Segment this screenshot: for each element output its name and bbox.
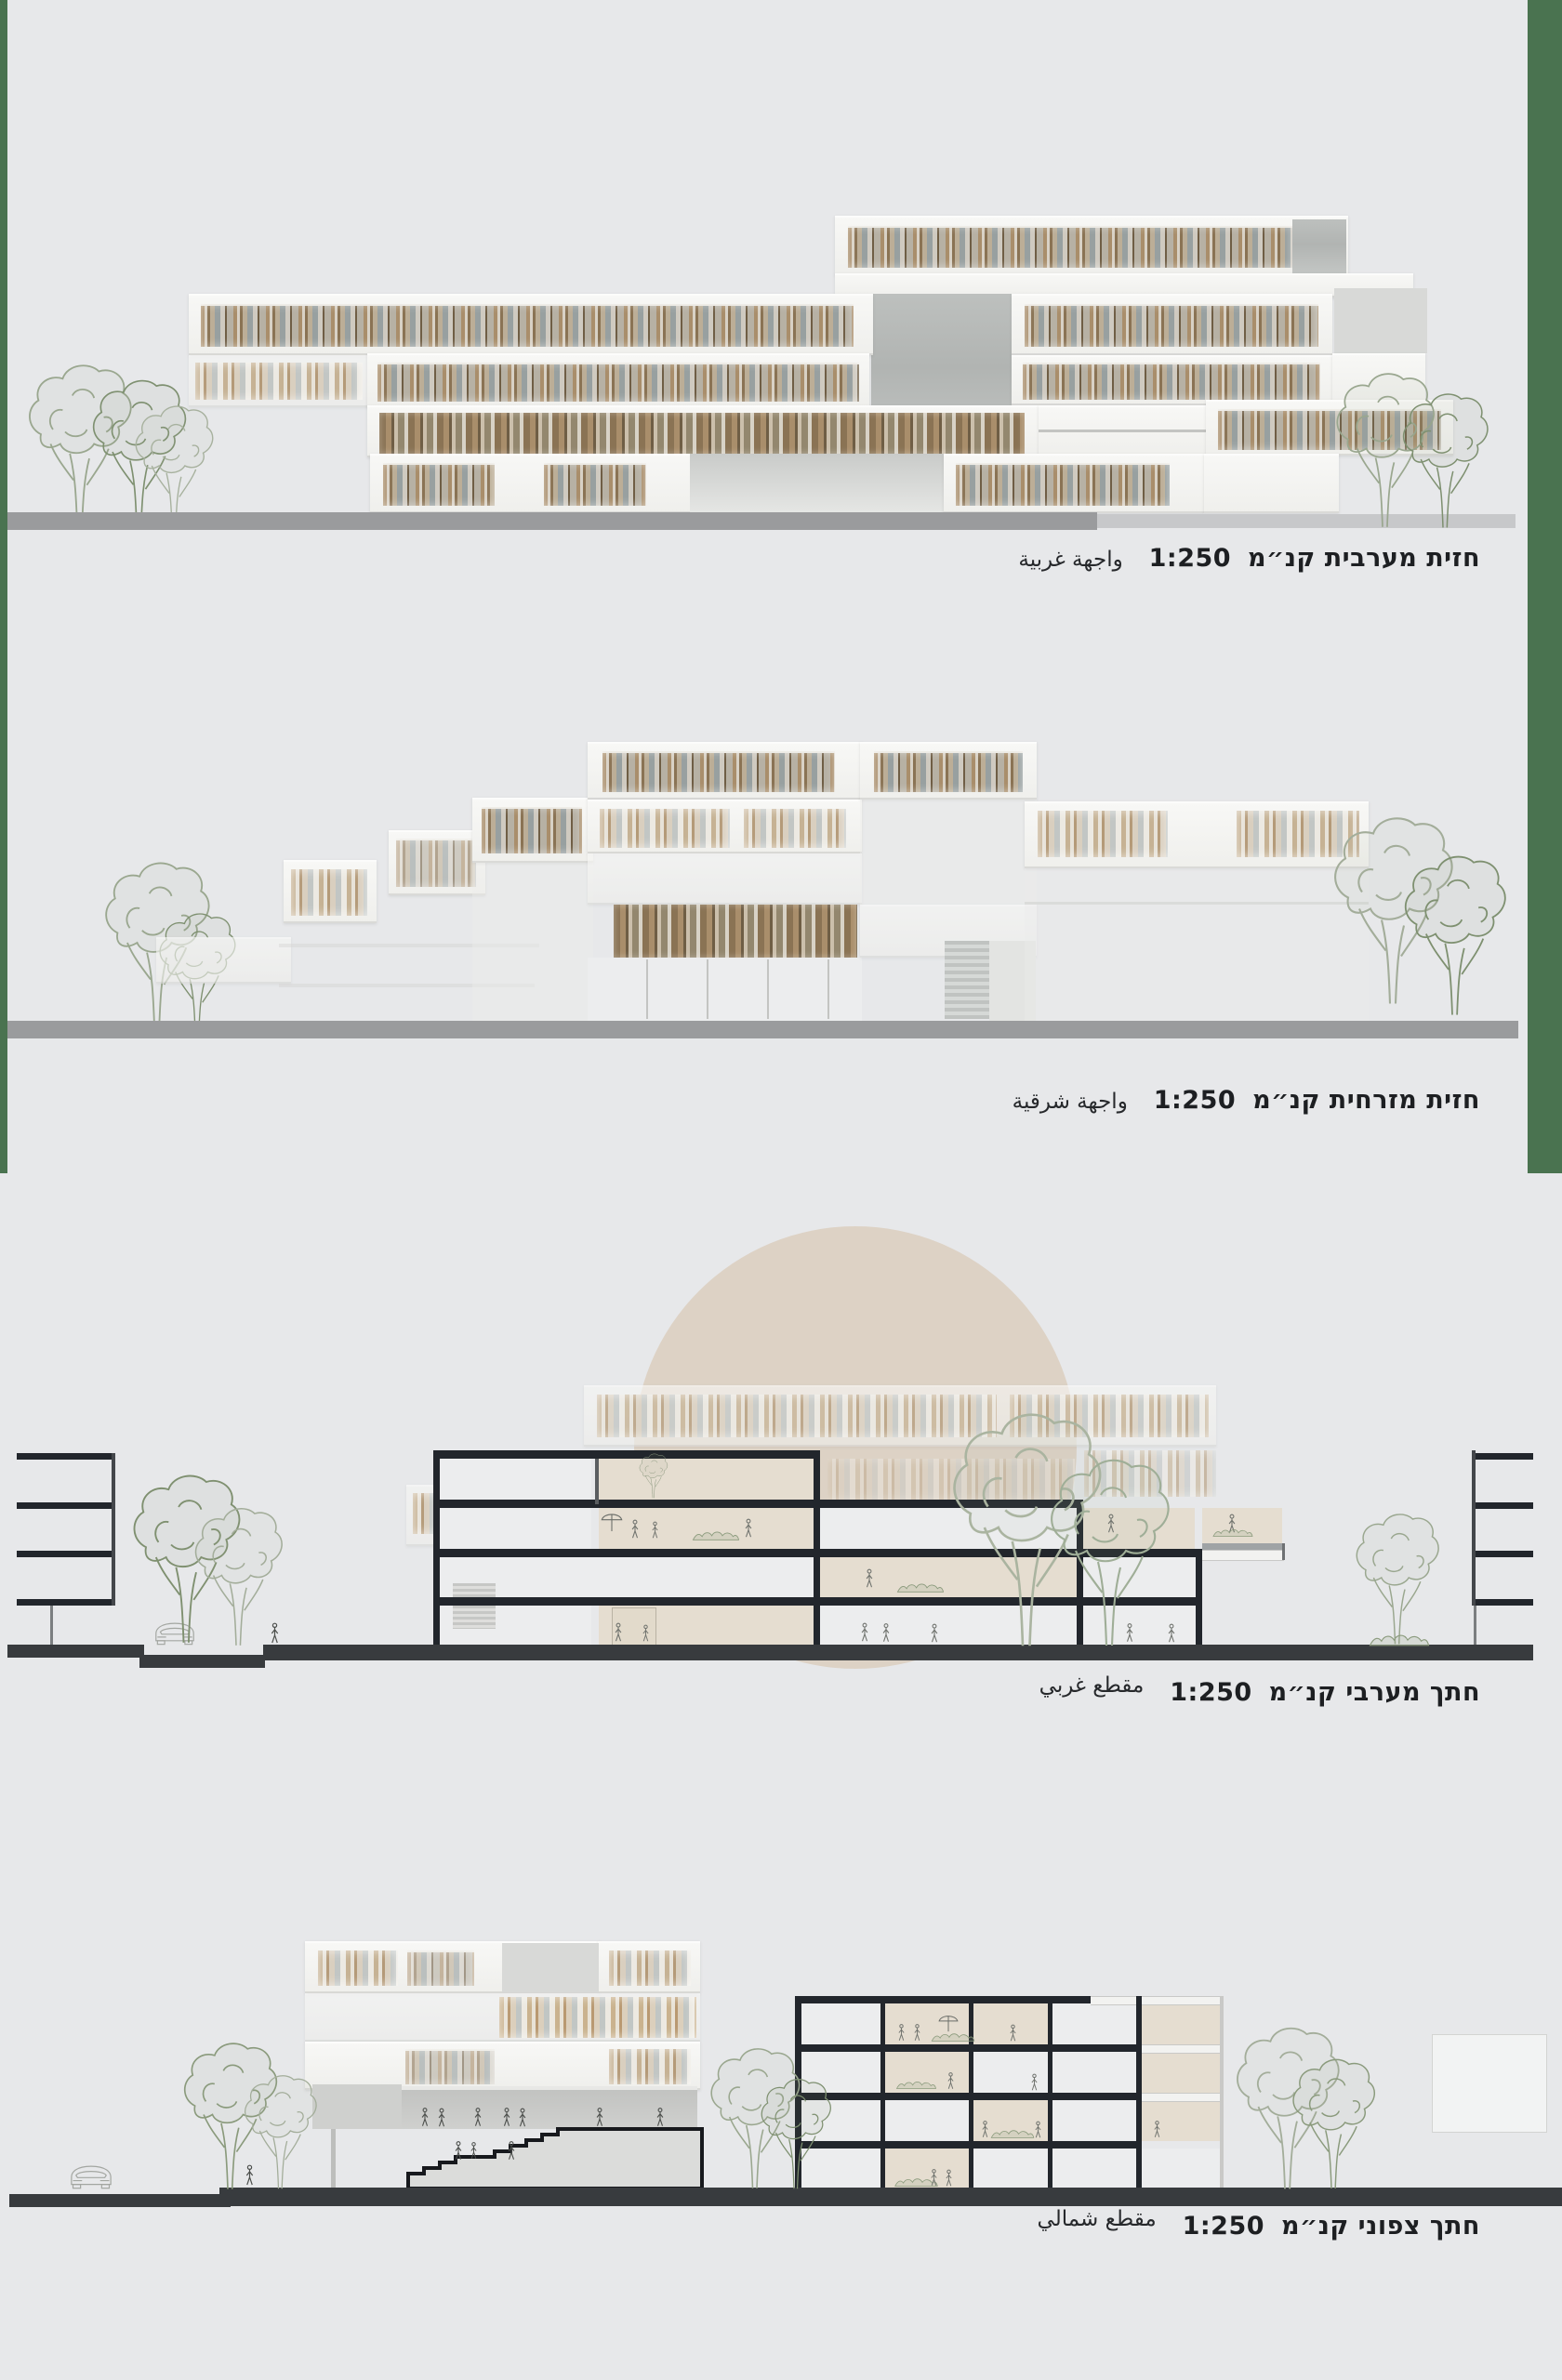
washed-wall <box>472 863 593 1021</box>
window-strip <box>383 463 495 506</box>
window-strip-long <box>499 1997 696 2038</box>
panel-north-section <box>0 1934 1562 2380</box>
column <box>433 1450 440 1647</box>
section-bay <box>973 2052 1136 2093</box>
person-figure <box>1034 2121 1042 2139</box>
concrete-panel <box>1334 288 1427 353</box>
person-figure <box>655 2107 665 2128</box>
tree-icon <box>184 1503 288 1647</box>
window-strip <box>744 809 846 848</box>
window-strip <box>195 363 363 400</box>
window-strip <box>201 304 854 347</box>
background-panel <box>1432 2034 1547 2133</box>
annex-slab <box>1141 2093 1223 2102</box>
pavilion <box>156 937 291 984</box>
tree-icon <box>1346 1508 1444 1647</box>
person-figure <box>507 2140 516 2162</box>
window-strip <box>1038 811 1168 857</box>
car-icon <box>67 2162 115 2191</box>
person-figure <box>454 2140 463 2162</box>
section-bay <box>440 1508 591 1549</box>
section-bay <box>801 2003 880 2044</box>
tree-icon <box>1393 839 1512 1029</box>
label-arabic: مقطع غربي <box>1039 1673 1145 1698</box>
tree-icon <box>1281 2055 1382 2190</box>
person-figure <box>518 2108 527 2128</box>
window-strip <box>407 1950 474 1986</box>
label-scale: 1:250 <box>1154 1086 1236 1115</box>
louver-panel <box>453 1583 496 1629</box>
neighbor-slab <box>17 1453 115 1460</box>
tree-icon <box>1393 389 1493 530</box>
person-figure <box>913 2023 921 2043</box>
person-figure <box>502 2107 511 2128</box>
column <box>969 1996 973 2189</box>
umbrella-icon <box>600 1510 624 1534</box>
person-figure <box>946 2071 955 2091</box>
column <box>1048 1996 1052 2189</box>
bridge-band <box>1202 1550 1284 1561</box>
window-strip <box>600 809 730 848</box>
panel-label-east-elevation: חזית מזרחית קנ״מ 1:250 واجهة شرقية <box>1013 1086 1480 1115</box>
panel-label-west-section: חתך מערבי קנ״מ 1:250 مقطع غربي <box>1039 1678 1480 1707</box>
tree-icon <box>751 2075 837 2190</box>
person-figure <box>1153 2120 1161 2139</box>
pier <box>827 959 829 1019</box>
sunken-hall-steps <box>398 2122 707 2195</box>
window-strip <box>405 2049 495 2084</box>
neighbor-slab <box>1476 1599 1533 1606</box>
label-arabic: مقطع شمالي <box>1038 2207 1157 2231</box>
section-bay <box>973 2149 1136 2189</box>
person-figure <box>437 2108 446 2128</box>
person-figure <box>897 2023 906 2043</box>
presentation-sheet: חזית מערבית קנ״מ 1:250 واجهة غربية <box>0 0 1562 2380</box>
facade-band <box>1204 454 1339 513</box>
shrub-icon <box>883 1580 958 1593</box>
neighbor-slab <box>17 1599 115 1606</box>
column <box>1136 1996 1142 2189</box>
person-figure <box>614 1621 623 1644</box>
column <box>1196 1549 1202 1647</box>
floor-slab <box>795 2044 1141 2052</box>
pier <box>767 959 769 1019</box>
canopy-column <box>331 2129 336 2188</box>
annex-bay <box>1142 2003 1222 2044</box>
entrance-opening <box>690 454 946 512</box>
ground-sidewalk <box>219 2188 1562 2206</box>
annex-slab <box>1141 2044 1223 2054</box>
neighbor-column <box>50 1606 53 1646</box>
person-figure <box>930 2168 938 2188</box>
person-figure <box>1009 2024 1017 2043</box>
shrub-icon <box>1344 1631 1455 1647</box>
person-figure <box>473 2107 483 2128</box>
person-figure <box>1030 2073 1039 2092</box>
annex-bay <box>1142 2149 1222 2189</box>
ground-road <box>9 2194 231 2207</box>
window-strip <box>379 413 1025 454</box>
canopy-block <box>312 2084 402 2129</box>
washed-wall <box>1025 868 1369 1021</box>
window-strip <box>377 363 859 402</box>
window-strip <box>848 226 1292 268</box>
ground-band <box>7 1021 1518 1038</box>
bridge-bay <box>1202 1508 1282 1543</box>
floor-slab <box>795 2093 1141 2100</box>
window-strip <box>602 751 835 792</box>
shrub-icon <box>986 2127 1039 2139</box>
person-figure <box>930 1623 939 1644</box>
label-scale: 1:250 <box>1170 1678 1251 1707</box>
window-strip <box>956 463 1170 506</box>
window-strip <box>482 807 582 853</box>
person-figure <box>595 2107 604 2128</box>
facade-band <box>588 853 862 905</box>
label-hebrew: חזית מזרחית קנ״מ <box>1252 1086 1480 1115</box>
label-hebrew: חזית מערבית קנ״מ <box>1248 544 1480 573</box>
bridge-end-line <box>1282 1543 1285 1560</box>
neighbor-slab <box>17 1551 115 1557</box>
washed-wall <box>860 800 1037 905</box>
label-hebrew: חתך מערבי קנ״מ <box>1269 1678 1480 1707</box>
person-figure <box>1125 1622 1134 1644</box>
pier <box>646 959 648 1019</box>
panel-west-elevation <box>0 0 1562 595</box>
shrub-icon <box>891 2079 942 2090</box>
label-hebrew: חתך צפוני קנ״מ <box>1281 2212 1480 2241</box>
window-strip <box>609 2049 691 2084</box>
section-bay <box>1052 2100 1136 2141</box>
window-strip <box>609 1950 691 1986</box>
panel-label-west-elevation: חזית מערבית קנ״מ 1:250 واجهة غربية <box>1018 544 1480 573</box>
window-strip <box>874 751 1023 792</box>
exterior-stairs <box>945 941 989 1019</box>
annex-bay <box>1142 2052 1222 2093</box>
label-arabic: واجهة غربية <box>1018 548 1122 572</box>
neighbor-edge <box>1472 1450 1476 1606</box>
shrub-icon <box>925 2030 981 2043</box>
tree-icon <box>1037 1452 1176 1649</box>
tree-icon <box>625 1452 681 1499</box>
concrete-panel <box>502 1943 599 1993</box>
neighbor-edge <box>112 1453 115 1606</box>
panel-west-section <box>0 1173 1562 1731</box>
person-figure <box>1106 1514 1116 1534</box>
floor-slab <box>795 1996 1091 2003</box>
neighbor-slab <box>1476 1502 1533 1509</box>
window-strip <box>291 869 367 916</box>
window-strip <box>544 463 646 506</box>
ground-road <box>139 1655 265 1668</box>
neighbor-slab <box>1476 1551 1533 1557</box>
window-strip <box>396 839 476 887</box>
window-strip-dark <box>614 905 857 958</box>
tree-icon <box>234 2071 323 2190</box>
section-bay <box>1052 2003 1136 2044</box>
neighbor-column <box>1474 1606 1476 1647</box>
tree-icon <box>126 402 218 530</box>
person-figure <box>1167 1623 1176 1644</box>
label-arabic: واجهة شرقية <box>1013 1090 1128 1114</box>
section-bay <box>440 1459 591 1500</box>
shrub-icon <box>1205 1527 1261 1538</box>
ground-floor <box>588 958 862 1021</box>
person-figure <box>865 1567 874 1590</box>
bridge-slab <box>1202 1543 1284 1550</box>
window-strip <box>1023 363 1320 400</box>
neighbor-slab <box>17 1502 115 1509</box>
panel-label-north-section: חתך צפוני קנ״מ 1:250 مقطع شمالي <box>1038 2212 1480 2241</box>
person-figure <box>470 2141 478 2161</box>
person-figure <box>945 2169 953 2188</box>
person-figure <box>860 1621 869 1644</box>
person-figure <box>881 1622 891 1644</box>
person-figure <box>651 1521 659 1540</box>
person-figure <box>642 1623 650 1644</box>
section-bay <box>440 1557 814 1597</box>
ground-sidewalk <box>7 1645 144 1658</box>
mullion <box>595 1459 599 1504</box>
pier <box>707 959 708 1019</box>
panel-east-elevation <box>0 595 1562 1134</box>
person-figure <box>630 1519 640 1540</box>
neighbor-slab <box>1476 1453 1533 1460</box>
label-scale: 1:250 <box>1183 2212 1264 2241</box>
floor-slab <box>795 2141 1139 2149</box>
column <box>880 1996 885 2189</box>
ground-band <box>7 512 1097 530</box>
person-figure <box>420 2107 430 2128</box>
person-figure <box>981 2120 989 2139</box>
concrete-panel <box>1292 219 1346 275</box>
shrub-icon <box>683 1528 748 1541</box>
label-scale: 1:250 <box>1149 544 1231 573</box>
window-strip <box>318 1950 398 1986</box>
annex-slab <box>1091 1996 1223 2005</box>
window-strip <box>1025 304 1318 347</box>
column <box>814 1450 820 1647</box>
wall-line <box>1025 902 1369 905</box>
